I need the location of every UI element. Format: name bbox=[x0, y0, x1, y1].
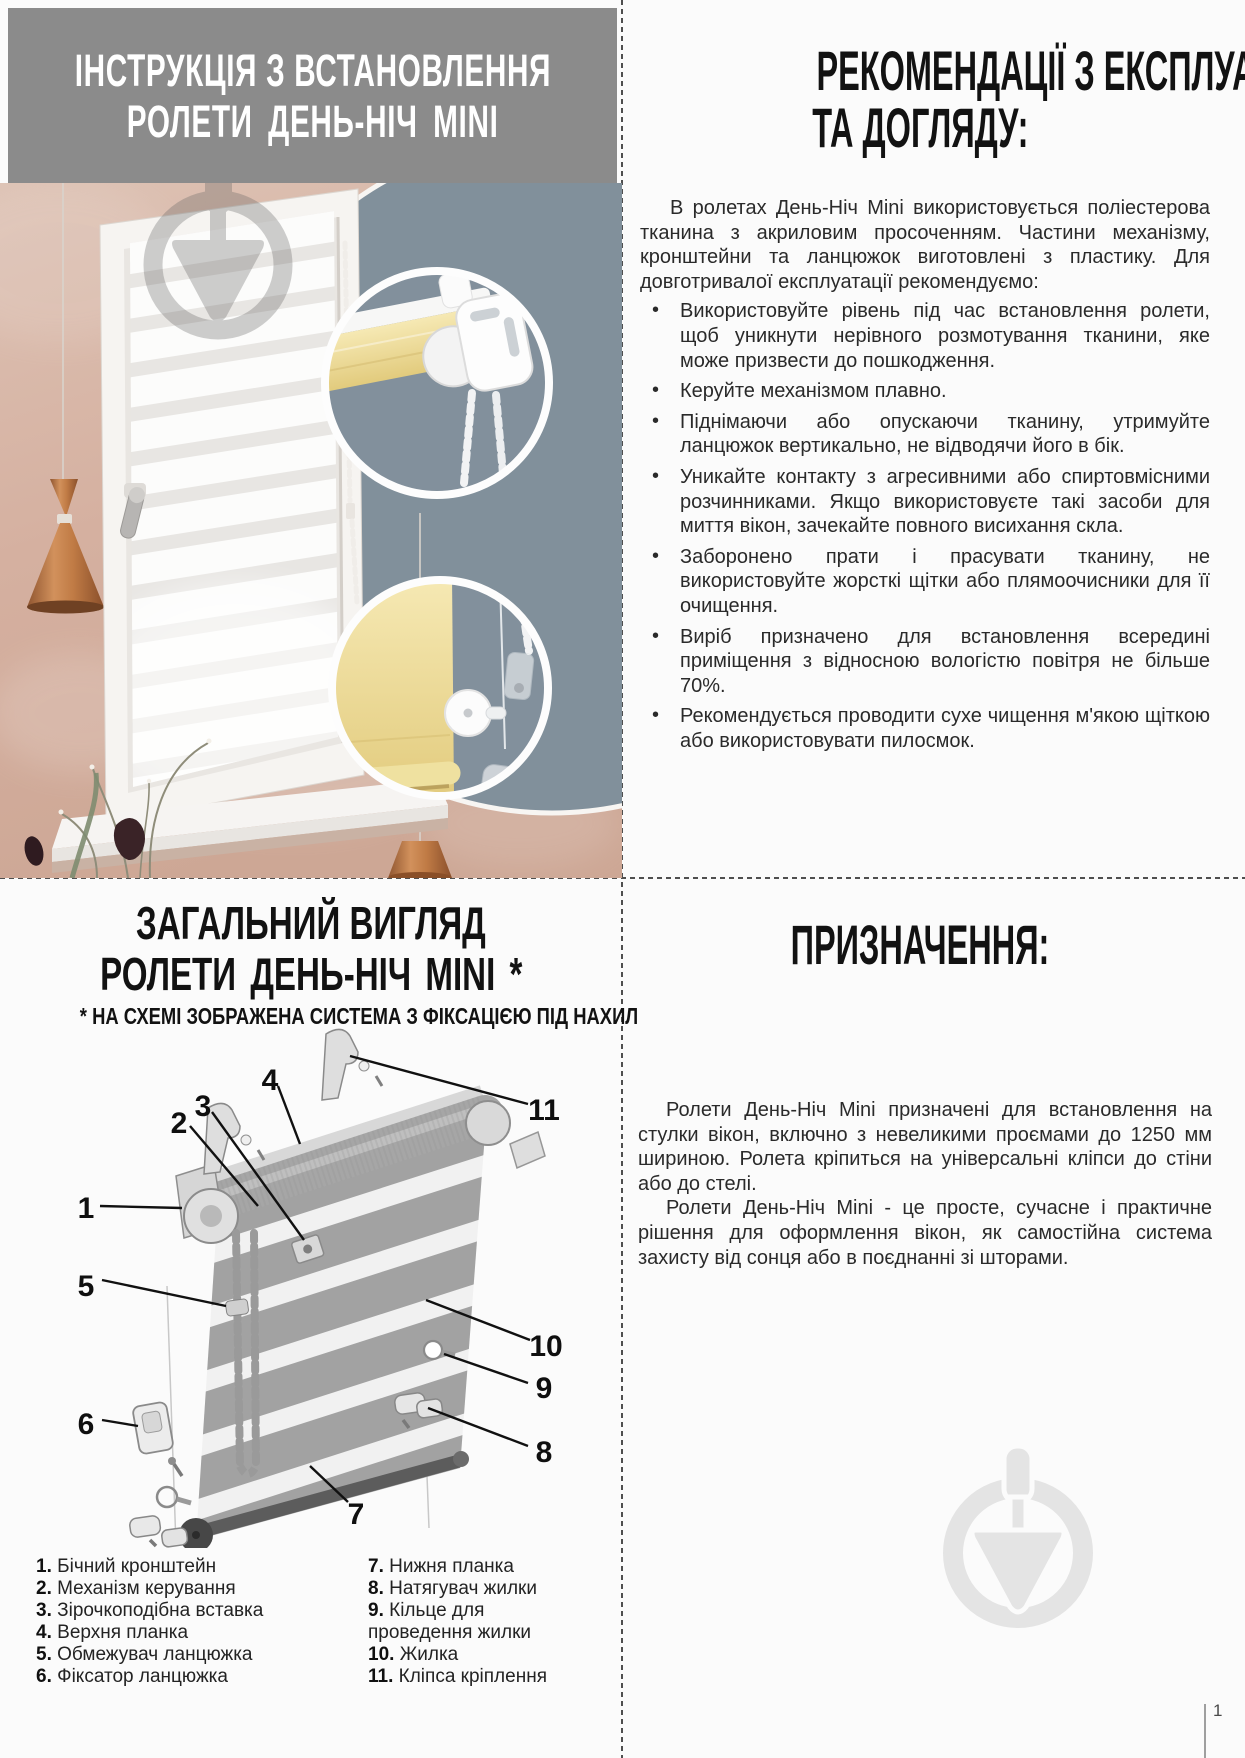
list-item: •Рекомендується проводити сухе чищення м… bbox=[640, 704, 1210, 753]
list-item: •Піднімаючи або опускаючи тканину, утрим… bbox=[640, 410, 1210, 459]
diagram-illustration: 1 2 3 4 5 6 7 8 9 10 11 bbox=[58, 1028, 570, 1548]
callout-8: 8 bbox=[536, 1436, 553, 1469]
purpose-body: Ролети День-Ніч Mini призначені для вста… bbox=[638, 1098, 1212, 1270]
list-item: •Уникайте контакту з агресивними або спи… bbox=[640, 465, 1210, 539]
bullet-dot: • bbox=[652, 544, 659, 569]
purpose-title: ПРИЗНАЧЕННЯ: bbox=[628, 916, 1212, 973]
callout-1: 1 bbox=[78, 1192, 95, 1225]
legend-item: 10. Жилка bbox=[368, 1644, 573, 1666]
callout-9: 9 bbox=[536, 1372, 553, 1405]
list-item: •Виріб призначено для встановлення всере… bbox=[640, 625, 1210, 699]
callout-6: 6 bbox=[78, 1408, 95, 1441]
recommendations-list: •Використовуйте рівень під час встановле… bbox=[640, 299, 1210, 753]
legend-right: 7. Нижня планка 8. Натягувач жилки 9. Кі… bbox=[368, 1556, 573, 1688]
bullet-dot: • bbox=[652, 624, 659, 649]
page: { "page": { "number": "1" }, "colors": {… bbox=[0, 0, 1245, 1758]
diagram-left-hardware bbox=[129, 1487, 191, 1548]
legend-item: 8. Натягувач жилки bbox=[368, 1578, 573, 1600]
window-photo bbox=[0, 183, 622, 878]
callout-11: 11 bbox=[528, 1094, 560, 1127]
bullet-dot: • bbox=[652, 378, 659, 403]
page-number: 1 bbox=[1213, 1701, 1222, 1721]
callout-4: 4 bbox=[262, 1064, 279, 1097]
recommendations-intro: В ролетах День-Ніч Mini використовується… bbox=[640, 196, 1210, 294]
list-item: •Керуйте механізмом плавно. bbox=[640, 379, 1210, 404]
callout-7: 7 bbox=[348, 1498, 365, 1531]
bullet-dot: • bbox=[652, 703, 659, 728]
install-title-line2: РОЛЕТИ ДЕНЬ-НІЧ MINI bbox=[31, 97, 594, 146]
purpose-paragraph-2: Ролети День-Ніч Mini - це просте, сучасн… bbox=[638, 1196, 1212, 1270]
legend-item: 6. Фіксатор ланцюжка bbox=[36, 1666, 336, 1688]
callout-2: 2 bbox=[171, 1107, 188, 1140]
recommendations-body: В ролетах День-Ніч Mini використовується… bbox=[640, 196, 1210, 759]
bullet-dot: • bbox=[652, 409, 659, 434]
list-item: •Використовуйте рівень під час встановле… bbox=[640, 299, 1210, 373]
legend-item: 3. Зірочкоподібна вставка bbox=[36, 1600, 336, 1622]
diagram-chain-fixator bbox=[132, 1401, 182, 1476]
bullet-dot: • bbox=[652, 298, 659, 323]
legend-item: 9. Кільце для проведення жилки bbox=[368, 1600, 573, 1644]
window-photo-illustration bbox=[0, 183, 622, 878]
recommendations-title: РЕКОМЕНДАЦІЇ З ЕКСПЛУАТАЦІЇ ТА ДОГЛЯДУ: bbox=[628, 42, 1212, 156]
legend-item: 11. Кліпса кріплення bbox=[368, 1666, 573, 1688]
bullet-dot: • bbox=[652, 464, 659, 489]
callout-10: 10 bbox=[529, 1330, 562, 1363]
roller-blind-diagram: 1 2 3 4 5 6 7 8 9 10 11 bbox=[58, 1028, 570, 1548]
purpose-paragraph-1: Ролети День-Ніч Mini призначені для вста… bbox=[638, 1098, 1212, 1196]
list-item: •Заборонено прати і прасувати тканину, н… bbox=[640, 545, 1210, 619]
callout-5: 5 bbox=[78, 1270, 95, 1303]
legend-item: 2. Механізм керування bbox=[36, 1578, 336, 1600]
trowel-logo-watermark-large bbox=[905, 1420, 1135, 1645]
callout-3: 3 bbox=[195, 1090, 212, 1123]
legend-item: 4. Верхня планка bbox=[36, 1622, 336, 1644]
legend-item: 5. Обмежувач ланцюжка bbox=[36, 1644, 336, 1666]
overview-title: ЗАГАЛЬНИЙ ВИГЛЯД РОЛЕТИ ДЕНЬ-НІЧ MINI * … bbox=[10, 898, 612, 1032]
page-number-divider bbox=[1204, 1704, 1206, 1758]
legend-item: 7. Нижня планка bbox=[368, 1556, 573, 1578]
install-title-line1: ІНСТРУКЦІЯ З ВСТАНОВЛЕННЯ bbox=[0, 46, 673, 95]
legend-item: 1. Бічний кронштейн bbox=[36, 1556, 336, 1578]
install-title-banner: ІНСТРУКЦІЯ З ВСТАНОВЛЕННЯ РОЛЕТИ ДЕНЬ-НІ… bbox=[8, 8, 617, 183]
legend-left: 1. Бічний кронштейн 2. Механізм керуванн… bbox=[36, 1556, 336, 1688]
